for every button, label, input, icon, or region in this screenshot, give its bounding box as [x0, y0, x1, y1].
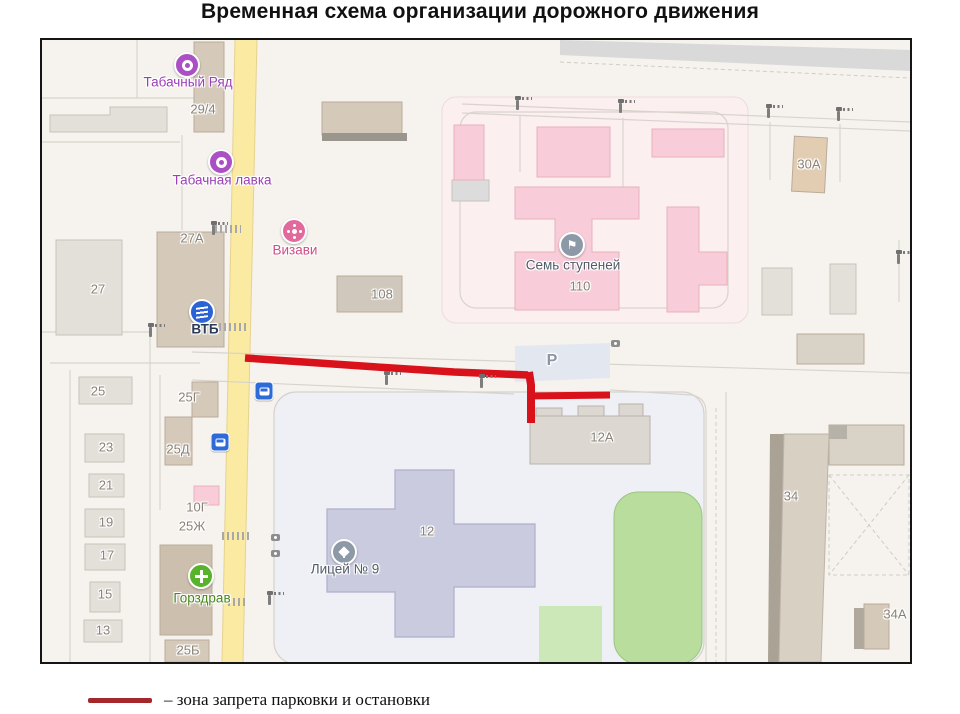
- building-label-23: 23: [99, 441, 113, 454]
- building-label-29-4: 29/4: [190, 103, 215, 116]
- street-lamp-icon: [212, 225, 215, 235]
- graduation-cap-glyph: [339, 547, 349, 557]
- gorzdrav-pharmacy-icon[interactable]: [188, 563, 214, 589]
- crosswalk-hatch: [219, 323, 249, 331]
- building-label-10g: 10Г: [186, 501, 208, 514]
- building-label-34a: 34А: [883, 608, 906, 621]
- building-34: [768, 434, 829, 662]
- poi-label-vtb: ВТБ: [191, 322, 218, 336]
- legend: – зона запрета парковки и остановки: [88, 688, 430, 712]
- building-label-34: 34: [784, 490, 798, 503]
- building-label-110: 110: [570, 280, 591, 293]
- building-label-25: 25: [91, 385, 105, 398]
- tobacco-shop-poi-icon[interactable]: [208, 149, 234, 175]
- building-label-27: 27: [91, 283, 105, 296]
- street-lamp-icon: [516, 100, 519, 110]
- building-label-25zh: 25Ж: [179, 520, 205, 533]
- street-lamp-icon: [619, 103, 622, 113]
- street-lamp-icon: [149, 327, 152, 337]
- bus-stop-icon[interactable]: [211, 433, 230, 452]
- vizavi-flower-icon[interactable]: [281, 218, 307, 244]
- poi-label-gorzdrav: Горздрав: [173, 591, 230, 605]
- building-label-15: 15: [98, 588, 112, 601]
- flower-glyph: [292, 229, 297, 234]
- flag-glyph: ⚑: [567, 239, 578, 251]
- street-lamp-icon: [268, 595, 271, 605]
- building-label-21: 21: [99, 479, 113, 492]
- parking-label: Р: [547, 353, 558, 369]
- bus-glyph: [259, 387, 269, 395]
- plus-glyph: [195, 570, 208, 583]
- donut-glyph: [216, 157, 227, 168]
- building-label-12: 12: [420, 525, 434, 538]
- camera-icon: [271, 550, 280, 557]
- vtb-logo-glyph: [196, 306, 208, 319]
- seven-steps-flag-icon[interactable]: ⚑: [559, 232, 585, 258]
- street-lamp-icon: [767, 108, 770, 118]
- street-lamp-icon: [897, 254, 900, 264]
- camera-icon: [271, 534, 280, 541]
- page: Временная схема организации дорожного дв…: [0, 0, 960, 714]
- building-label-27a: 27А: [180, 232, 203, 245]
- poi-label-seven-steps: Семь ступеней: [526, 258, 620, 272]
- legend-line-swatch: [88, 698, 152, 703]
- poi-label-lyceum: Лицей № 9: [311, 562, 380, 576]
- street-lamp-icon: [385, 375, 388, 385]
- building-label-12a: 12А: [590, 431, 613, 444]
- crosswalk-hatch: [215, 225, 241, 233]
- donut-glyph: [182, 60, 193, 71]
- street-lamp-icon: [837, 111, 840, 121]
- street-lamp-icon: [480, 378, 483, 388]
- building-label-19: 19: [99, 516, 113, 529]
- bus-glyph: [215, 438, 225, 446]
- building-label-30a: 30А: [797, 158, 820, 171]
- poi-label-vizavi: Визави: [273, 243, 318, 257]
- building-label-13: 13: [96, 624, 110, 637]
- map-canvas: [42, 40, 910, 662]
- map-roads: [222, 40, 257, 662]
- building-label-25g: 25Г: [178, 391, 200, 404]
- camera-icon: [611, 340, 620, 347]
- poi-label-tobacco-row: Табачный Ряд: [143, 75, 232, 89]
- poi-label-tobacco-shop: Табачная лавка: [172, 173, 271, 187]
- building-label-25d: 25Д: [166, 443, 189, 456]
- crosswalk-hatch: [228, 598, 248, 606]
- crosswalk-hatch: [222, 532, 249, 540]
- bus-stop-icon[interactable]: [255, 382, 274, 401]
- building-label-25b: 25Б: [177, 644, 200, 657]
- building-label-17: 17: [100, 549, 114, 562]
- page-title: Временная схема организации дорожного дв…: [0, 0, 960, 24]
- legend-label: – зона запрета парковки и остановки: [164, 690, 430, 710]
- map[interactable]: ⚑ Табачный Ряд 29/4 Табачная лавка 27А В…: [40, 38, 912, 664]
- building-label-108: 108: [371, 288, 393, 301]
